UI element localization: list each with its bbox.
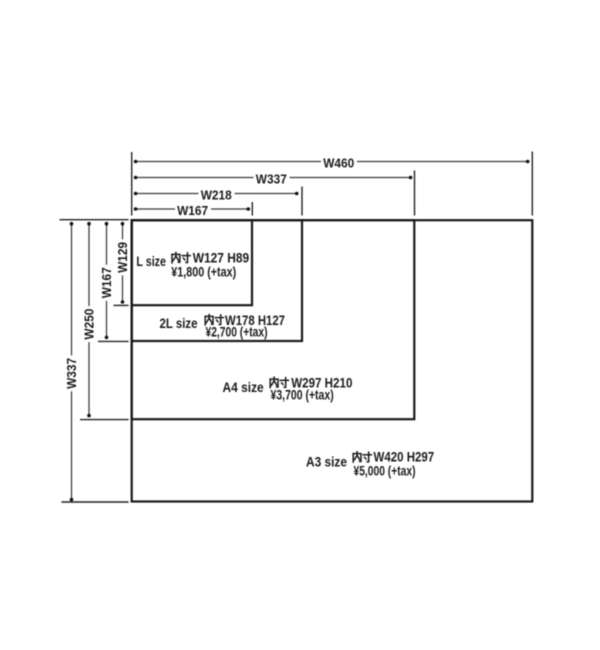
svg-text:W337: W337: [256, 171, 287, 186]
svg-text:¥2,700 (+tax): ¥2,700 (+tax): [206, 325, 268, 340]
svg-text:¥5,000 (+tax): ¥5,000 (+tax): [354, 464, 416, 479]
svg-text:¥1,800 (+tax): ¥1,800 (+tax): [171, 265, 236, 280]
svg-text:W167: W167: [177, 203, 208, 218]
svg-text:W127 H89: W127 H89: [193, 250, 250, 266]
svg-text:A3 size: A3 size: [306, 454, 347, 470]
svg-text:¥3,700 (+tax): ¥3,700 (+tax): [271, 388, 334, 403]
svg-text:W167: W167: [99, 267, 114, 298]
svg-text:W460: W460: [323, 155, 354, 170]
svg-text:W218: W218: [201, 187, 232, 202]
svg-text:W129: W129: [115, 242, 130, 273]
svg-text:W250: W250: [82, 309, 97, 340]
svg-text:W337: W337: [64, 358, 79, 389]
svg-text:W420 H297: W420 H297: [374, 449, 435, 465]
svg-text:L size: L size: [136, 253, 166, 269]
svg-text:2L size: 2L size: [160, 315, 198, 331]
svg-text:A4 size: A4 size: [223, 379, 264, 395]
